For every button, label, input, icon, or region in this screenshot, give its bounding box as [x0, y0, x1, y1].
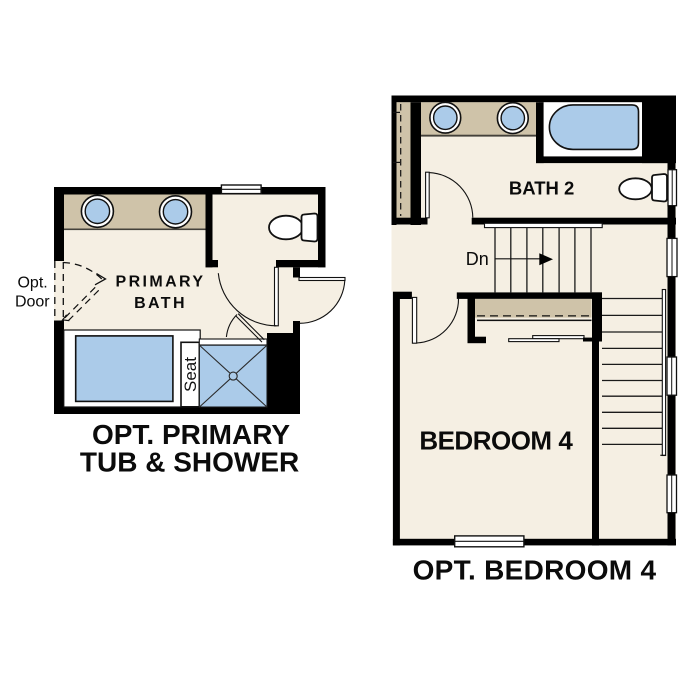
- svg-text:OPT. BEDROOM 4: OPT. BEDROOM 4: [413, 554, 657, 585]
- svg-text:Dn: Dn: [466, 249, 489, 269]
- svg-text:BATH 2: BATH 2: [509, 177, 574, 198]
- svg-text:BATH: BATH: [134, 295, 187, 312]
- svg-text:TUB & SHOWER: TUB & SHOWER: [80, 446, 299, 477]
- svg-text:Opt.: Opt.: [17, 274, 47, 291]
- svg-text:Seat: Seat: [181, 357, 200, 392]
- svg-text:PRIMARY: PRIMARY: [116, 274, 206, 291]
- svg-text:BEDROOM 4: BEDROOM 4: [419, 426, 573, 456]
- svg-text:Door: Door: [15, 293, 50, 310]
